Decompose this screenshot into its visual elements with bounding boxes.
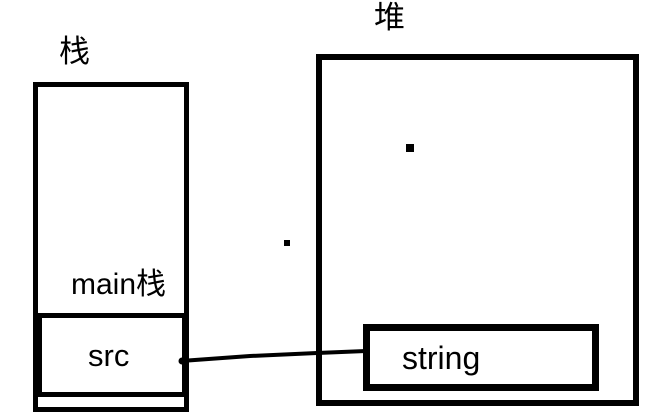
memory-diagram: 栈 堆 main栈 src string — [0, 0, 657, 414]
ink-dot-1 — [284, 240, 290, 246]
heap-title: 堆 — [374, 2, 405, 33]
src-slot-box: src — [37, 313, 187, 397]
string-label: string — [370, 342, 480, 374]
src-label: src — [42, 340, 129, 371]
ink-dot-2 — [406, 144, 414, 152]
main-frame-label: main栈 — [71, 270, 166, 300]
string-block-box: string — [363, 324, 599, 391]
stack-title: 栈 — [59, 36, 90, 67]
